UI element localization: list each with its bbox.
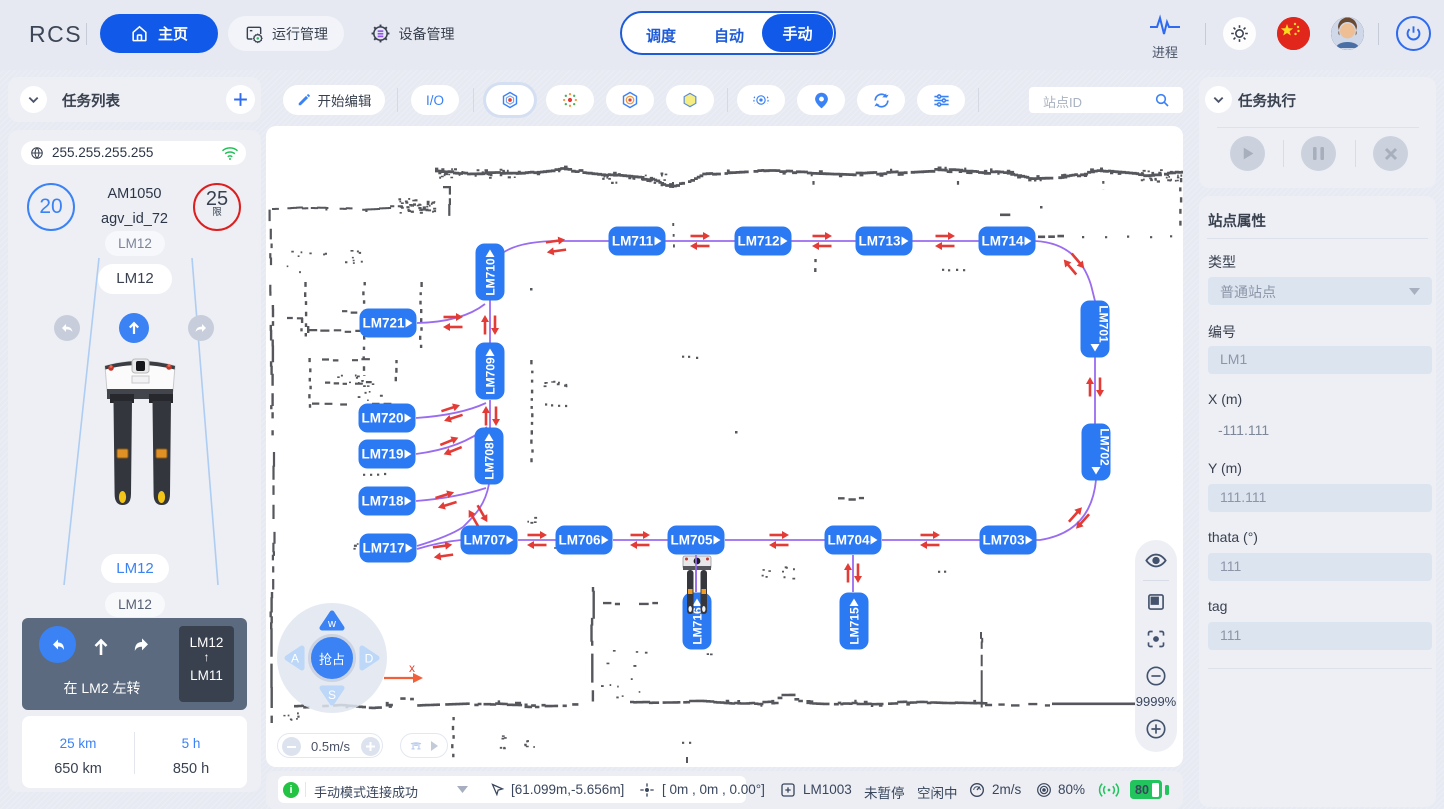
svg-text:LM710: LM710 [484, 258, 498, 296]
svg-text:LM707: LM707 [463, 533, 505, 548]
svg-text:A: A [291, 652, 299, 666]
svg-text:LM720: LM720 [361, 411, 403, 426]
svg-text:LM721: LM721 [362, 316, 405, 331]
svg-text:LM703: LM703 [982, 533, 1025, 548]
svg-text:LM701: LM701 [1097, 305, 1111, 343]
svg-text:x: x [409, 661, 415, 675]
svg-text:w: w [327, 618, 336, 630]
svg-text:LM704: LM704 [827, 533, 870, 548]
svg-text:LM702: LM702 [1098, 428, 1112, 466]
svg-text:LM709: LM709 [484, 357, 498, 395]
svg-text:LM715: LM715 [848, 607, 862, 645]
svg-text:S: S [328, 688, 336, 702]
svg-text:LM713: LM713 [858, 234, 901, 249]
svg-text:LM706: LM706 [558, 533, 601, 548]
svg-text:LM711: LM711 [612, 234, 654, 249]
svg-text:LM712: LM712 [737, 234, 779, 249]
svg-text:LM708: LM708 [483, 442, 497, 480]
svg-text:D: D [365, 652, 374, 666]
svg-text:LM719: LM719 [361, 447, 403, 462]
svg-text:LM714: LM714 [981, 234, 1024, 249]
svg-text:LM718: LM718 [361, 494, 404, 509]
svg-text:LM705: LM705 [670, 533, 713, 548]
svg-text:LM717: LM717 [362, 541, 404, 556]
